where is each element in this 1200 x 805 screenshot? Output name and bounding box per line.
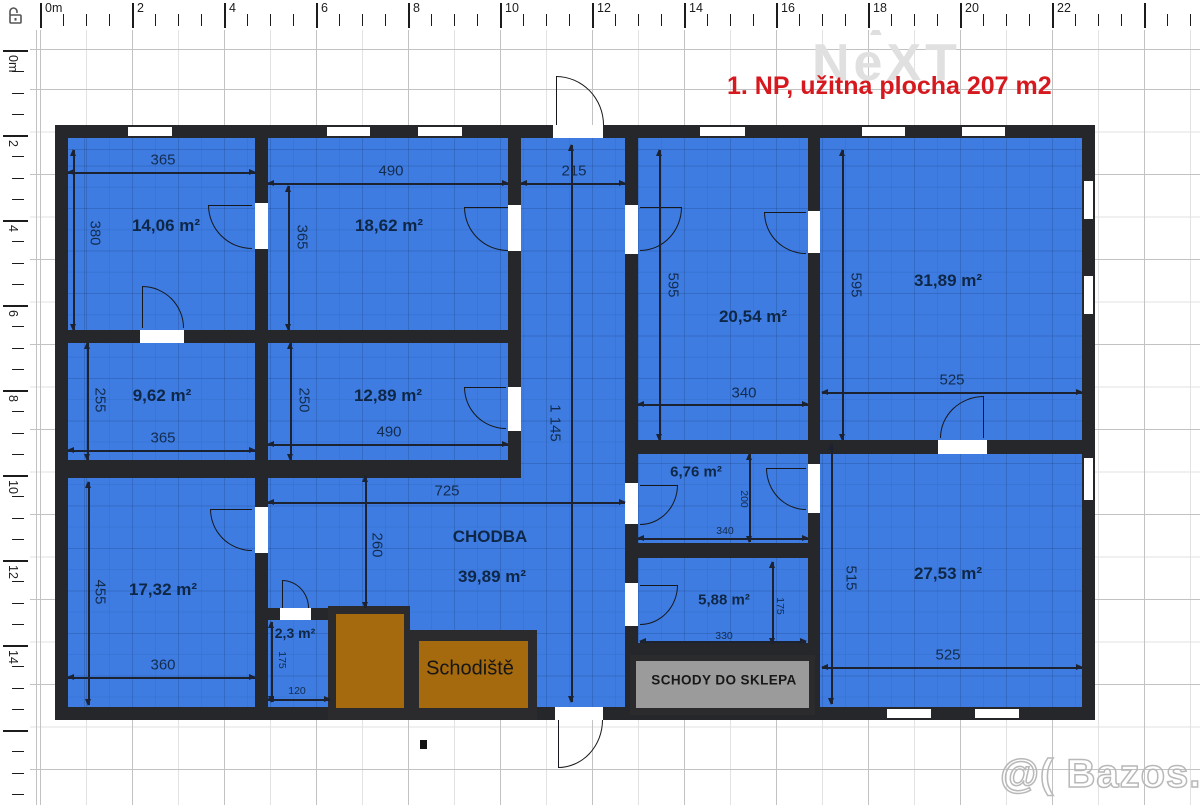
entrance-door-arc: [556, 76, 604, 125]
corridor-area-label: 39,89 m²: [458, 567, 526, 587]
door-opening: [255, 507, 268, 553]
ruler-minor-tick: [201, 14, 202, 26]
ruler-minor-tick: [12, 241, 24, 242]
dim-line: [831, 444, 833, 704]
ruler-minor-tick: [753, 14, 754, 26]
door-opening: [938, 440, 987, 454]
ruler-minor-tick: [454, 14, 455, 26]
ruler-minor-tick: [12, 581, 24, 582]
ruler-minor-tick: [477, 14, 478, 26]
ruler-label: 20: [965, 1, 979, 15]
ruler-label: 6: [321, 1, 328, 15]
ruler-major-tick: [960, 3, 962, 28]
room-label: 9,62 m²: [133, 386, 192, 406]
ruler-minor-tick: [362, 14, 363, 26]
dim-line: [842, 150, 844, 440]
dim-label: 260: [369, 532, 386, 557]
ruler-major-tick: [1052, 3, 1054, 28]
ruler-minor-tick: [569, 14, 570, 26]
ruler-label: 22: [1057, 1, 1071, 15]
dim-line: [365, 476, 367, 608]
bazos-watermark: @( Bazos.cz: [1000, 752, 1200, 797]
ruler-minor-tick: [12, 263, 24, 264]
dim-label: 380: [87, 220, 104, 245]
door-opening: [625, 483, 638, 524]
dim-line: [88, 482, 90, 705]
ruler-minor-tick: [546, 14, 547, 26]
ruler-minor-tick: [730, 14, 731, 26]
ruler-major-tick: [3, 645, 28, 647]
room-label: 14,06 m²: [132, 216, 200, 236]
dim-line: [68, 677, 255, 679]
ruler-minor-tick: [86, 14, 87, 26]
ruler-label: 4: [229, 1, 236, 15]
ruler-major-tick: [3, 135, 28, 137]
ruler-minor-tick: [12, 114, 24, 115]
ruler-label: 14: [6, 650, 20, 664]
door-opening: [140, 330, 184, 343]
ruler-major-tick: [3, 220, 28, 222]
ruler-minor-tick: [1098, 14, 1099, 26]
ruler-minor-tick: [12, 433, 24, 434]
door-opening: [508, 205, 521, 251]
room-label: 6,76 m²: [670, 464, 722, 481]
dim-label: 120: [288, 685, 306, 697]
dim-line: [268, 699, 330, 701]
ruler-major-tick: [684, 3, 686, 28]
ruler-minor-tick: [1167, 14, 1168, 26]
window: [862, 127, 905, 136]
handle-dot: [420, 740, 427, 749]
ruler-minor-tick: [431, 14, 432, 26]
ruler-label: 2: [6, 140, 20, 147]
ruler-minor-tick: [247, 14, 248, 26]
ruler-label: 4: [6, 225, 20, 232]
room-label: 2,3 m²: [275, 625, 315, 641]
window: [975, 709, 1019, 718]
dim-label: 525: [939, 372, 964, 389]
ruler-corner: [0, 0, 30, 30]
ruler-label: 16: [781, 1, 795, 15]
ruler-minor-tick: [12, 178, 24, 179]
dim-label: 1 145: [547, 404, 564, 442]
room-label: 5,88 m²: [698, 592, 750, 609]
ruler-minor-tick: [1075, 14, 1076, 26]
dim-line: [68, 172, 255, 174]
dim-line: [571, 145, 573, 702]
dim-label: 255: [92, 387, 109, 412]
ruler-minor-tick: [12, 93, 24, 94]
window: [327, 127, 370, 136]
unlock-icon[interactable]: [5, 5, 27, 27]
dim-label: 175: [774, 597, 786, 615]
window: [962, 127, 1005, 136]
dim-line: [638, 404, 808, 406]
dim-label: 490: [376, 424, 401, 441]
dim-line: [822, 392, 1082, 394]
ruler-major-tick: [3, 475, 28, 477]
ruler-minor-tick: [12, 624, 24, 625]
window: [1084, 181, 1093, 219]
window: [1084, 276, 1093, 314]
ruler-major-tick: [3, 390, 28, 392]
exit-door-arc: [558, 720, 603, 768]
dim-label: 200: [738, 490, 750, 508]
ruler-label: 6: [6, 310, 20, 317]
room-label: 12,89 m²: [354, 386, 422, 406]
ruler-minor-tick: [12, 348, 24, 349]
dim-label: 365: [150, 430, 175, 447]
ruler-minor-tick: [1190, 14, 1191, 26]
ruler-left: 0m2468101214: [0, 0, 30, 805]
floorplan-canvas: NeXT ▲ 1. NP, užitna plocha 207 m2 @( Ba…: [0, 0, 1200, 805]
dim-line: [521, 183, 625, 185]
ruler-minor-tick: [661, 14, 662, 26]
dim-label: 365: [150, 152, 175, 169]
room-label: 18,62 m²: [355, 216, 423, 236]
ruler-label: 0m: [6, 55, 20, 72]
ruler-major-tick: [40, 3, 42, 28]
ruler-top: 0m246810121416182022: [0, 0, 1200, 30]
window: [418, 127, 462, 136]
dim-label: 595: [665, 272, 682, 297]
dim-line: [290, 343, 292, 460]
ruler-major-tick: [776, 3, 778, 28]
dim-line: [268, 183, 508, 185]
dim-label: 340: [731, 385, 756, 402]
ruler-major-tick: [1144, 3, 1146, 28]
ruler-major-tick: [3, 305, 28, 307]
dim-line: [268, 444, 508, 446]
window: [1084, 458, 1093, 500]
ruler-major-tick: [3, 50, 28, 52]
ruler-label: 18: [873, 1, 887, 15]
ruler-minor-tick: [638, 14, 639, 26]
plan-title: 1. NP, užitna plocha 207 m2: [727, 72, 1052, 101]
dim-line: [822, 667, 1082, 669]
ruler-minor-tick: [339, 14, 340, 26]
dim-label: 595: [848, 272, 865, 297]
ruler-minor-tick: [12, 603, 24, 604]
dim-line: [288, 186, 290, 330]
ruler-minor-tick: [1006, 14, 1007, 26]
dim-line: [271, 622, 273, 702]
dim-label: 725: [434, 483, 459, 500]
room-label: 31,89 m²: [914, 271, 982, 291]
ruler-label: 0m: [45, 1, 62, 15]
corridor-name-label: CHODBA: [453, 527, 528, 547]
window: [128, 127, 172, 136]
dim-label: 215: [561, 163, 586, 180]
ruler-major-tick: [316, 3, 318, 28]
ruler-minor-tick: [12, 773, 24, 774]
door-opening: [808, 464, 820, 513]
ruler-minor-tick: [155, 14, 156, 26]
ruler-label: 2: [137, 1, 144, 15]
ruler-minor-tick: [799, 14, 800, 26]
ruler-minor-tick: [270, 14, 271, 26]
dim-label: 340: [716, 525, 734, 537]
dim-label: 330: [715, 630, 733, 642]
ruler-label: 14: [689, 1, 703, 15]
ruler-minor-tick: [12, 199, 24, 200]
ruler-label: 8: [6, 395, 20, 402]
ruler-minor-tick: [63, 14, 64, 26]
ruler-major-tick: [132, 3, 134, 28]
ruler-minor-tick: [983, 14, 984, 26]
ruler-minor-tick: [385, 14, 386, 26]
dim-line: [68, 450, 255, 452]
door-opening: [508, 387, 521, 431]
ruler-label: 10: [6, 480, 20, 494]
ruler-label: 10: [505, 1, 519, 15]
ruler-minor-tick: [914, 14, 915, 26]
staircase-label: Schodiště: [426, 658, 514, 681]
door-opening: [625, 205, 638, 254]
wall-outer-left: [55, 125, 68, 720]
window: [700, 127, 745, 136]
ruler-minor-tick: [12, 709, 24, 710]
ruler-minor-tick: [109, 14, 110, 26]
ruler-major-tick: [408, 3, 410, 28]
ruler-minor-tick: [293, 14, 294, 26]
dim-line: [659, 150, 661, 440]
ruler-major-tick: [592, 3, 594, 28]
dim-label: 490: [378, 163, 403, 180]
room-label: 20,54 m²: [719, 307, 787, 327]
exit-door-opening: [555, 707, 603, 720]
dim-label: 175: [276, 651, 288, 669]
ruler-label: 12: [6, 565, 20, 579]
ruler-minor-tick: [615, 14, 616, 26]
ruler-minor-tick: [12, 751, 24, 752]
ruler-minor-tick: [891, 14, 892, 26]
door-opening: [625, 583, 638, 626]
dim-label: 515: [843, 565, 860, 590]
door-opening: [255, 203, 268, 249]
basement-stairs-label: SCHODY DO SKLEPA: [651, 673, 796, 688]
dim-label: 365: [294, 224, 311, 249]
dim-label: 250: [296, 387, 313, 412]
ruler-minor-tick: [12, 369, 24, 370]
ruler-label: 8: [413, 1, 420, 15]
ruler-minor-tick: [12, 411, 24, 412]
door-opening: [280, 608, 311, 620]
ruler-minor-tick: [12, 71, 24, 72]
ruler-minor-tick: [1121, 14, 1122, 26]
ruler-major-tick: [500, 3, 502, 28]
ruler-minor-tick: [12, 496, 24, 497]
ruler-minor-tick: [12, 518, 24, 519]
ruler-minor-tick: [12, 326, 24, 327]
wall-h-middle: [55, 460, 521, 478]
ruler-minor-tick: [12, 794, 24, 795]
ruler-minor-tick: [12, 539, 24, 540]
dim-label: 455: [92, 579, 109, 604]
wall-h-right: [625, 440, 1095, 454]
ruler-minor-tick: [12, 284, 24, 285]
room-label: 27,53 m²: [914, 564, 982, 584]
door-opening: [808, 211, 820, 253]
ruler-minor-tick: [1029, 14, 1030, 26]
ruler-minor-tick: [178, 14, 179, 26]
dim-line: [87, 343, 89, 460]
dim-line: [73, 150, 75, 330]
ruler-label: 12: [597, 1, 611, 15]
ruler-minor-tick: [707, 14, 708, 26]
dim-line: [638, 538, 808, 540]
stair-box-small: [336, 614, 404, 708]
window: [887, 709, 931, 718]
ruler-minor-tick: [12, 454, 24, 455]
dim-label: 360: [150, 657, 175, 674]
dim-label: 525: [935, 647, 960, 664]
ruler-major-tick: [3, 730, 28, 732]
ruler-minor-tick: [12, 666, 24, 667]
ruler-minor-tick: [845, 14, 846, 26]
ruler-minor-tick: [12, 688, 24, 689]
ruler-minor-tick: [523, 14, 524, 26]
entrance-door-opening: [553, 125, 603, 138]
ruler-minor-tick: [12, 156, 24, 157]
ruler-major-tick: [224, 3, 226, 28]
room-label: 17,32 m²: [129, 580, 197, 600]
ruler-major-tick: [3, 560, 28, 562]
wall-676-588-divider: [625, 543, 820, 558]
ruler-minor-tick: [822, 14, 823, 26]
ruler-major-tick: [868, 3, 870, 28]
ruler-minor-tick: [937, 14, 938, 26]
